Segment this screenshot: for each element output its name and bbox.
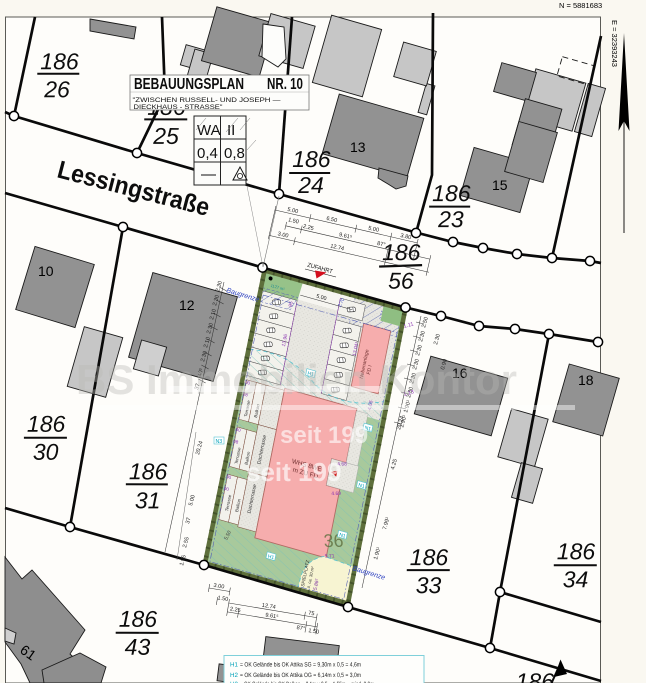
svg-text:186: 186: [516, 668, 555, 683]
svg-text:23: 23: [437, 206, 464, 232]
svg-text:26: 26: [43, 76, 70, 102]
svg-text:34: 34: [563, 566, 589, 592]
svg-text:N3: N3: [216, 439, 223, 445]
svg-text:II: II: [227, 122, 235, 139]
svg-text:= OK Gelände bis OK Attika SG: = OK Gelände bis OK Attika SG = 9,30m x …: [240, 661, 361, 668]
svg-text:186: 186: [119, 606, 158, 632]
svg-text:10: 10: [38, 263, 54, 279]
svg-text:31: 31: [135, 487, 161, 513]
svg-text:= OK Gelände bis OK Attika OG: = OK Gelände bis OK Attika OG = 6,14m x …: [240, 672, 361, 679]
svg-text:seit 199: seit 199: [246, 457, 341, 487]
svg-text:H1: H1: [230, 661, 238, 668]
svg-text:25: 25: [152, 123, 179, 149]
svg-text:15: 15: [492, 177, 508, 193]
svg-text:186: 186: [432, 180, 471, 206]
svg-text:0,8: 0,8: [224, 145, 245, 162]
svg-text:186: 186: [557, 538, 596, 564]
svg-text:DIECKHAUS - STRASSE": DIECKHAUS - STRASSE": [134, 104, 224, 111]
svg-text:33: 33: [416, 572, 442, 598]
svg-text:NR. 10: NR. 10: [267, 76, 303, 93]
svg-text:186: 186: [292, 146, 331, 172]
svg-text:24: 24: [297, 172, 324, 198]
svg-text:—: —: [201, 166, 216, 183]
svg-text:186: 186: [129, 458, 168, 484]
svg-text:seit 199: seit 199: [280, 422, 368, 449]
svg-text:BS Immobilien Kontor: BS Immobilien Kontor: [76, 356, 517, 403]
svg-text:5.71: 5.71: [325, 553, 335, 559]
svg-text:BEBAUUNGSPLAN: BEBAUUNGSPLAN: [134, 76, 244, 93]
svg-text:H2: H2: [230, 672, 238, 679]
svg-text:186: 186: [27, 411, 66, 437]
svg-text:E = 32393243: E = 32393243: [610, 20, 619, 67]
svg-text:13: 13: [350, 139, 366, 155]
svg-text:56: 56: [388, 268, 414, 294]
svg-text:186: 186: [410, 544, 449, 570]
svg-text:186: 186: [40, 48, 79, 74]
svg-text:12: 12: [179, 297, 195, 313]
svg-text:43: 43: [125, 634, 151, 660]
svg-text:18: 18: [578, 372, 594, 388]
svg-text:0,4: 0,4: [197, 145, 218, 162]
svg-text:N = 5881683: N = 5881683: [559, 1, 602, 10]
svg-text:30: 30: [33, 439, 59, 465]
svg-text:75: 75: [308, 610, 315, 617]
svg-text:4.69: 4.69: [331, 491, 341, 497]
